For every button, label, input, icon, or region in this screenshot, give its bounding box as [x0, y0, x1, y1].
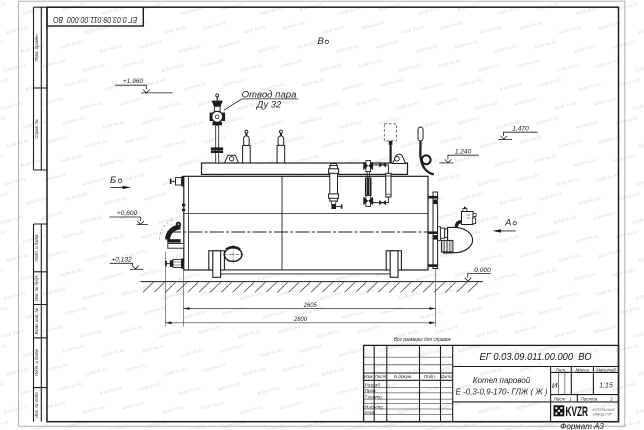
svg-text:Подп. и дата: Подп. и дата	[34, 234, 39, 262]
svg-text:KVZR: KVZR	[566, 403, 589, 419]
svg-text:Инв. № подл.: Инв. № подл.	[34, 391, 39, 418]
svg-text:+0,132: +0,132	[111, 257, 132, 264]
svg-text:Формат А3: Формат А3	[560, 422, 604, 430]
svg-text:Масштаб: Масштаб	[596, 367, 616, 372]
svg-text:+1,960: +1,960	[123, 78, 144, 85]
svg-text:Лист: Лист	[374, 374, 387, 379]
svg-text:Перв. примен.: Перв. примен.	[34, 33, 39, 62]
svg-text:В: В	[318, 36, 325, 47]
svg-text:Е -0,3-0,9-170- ГЛЖ ( Ж ): Е -0,3-0,9-170- ГЛЖ ( Ж )	[456, 388, 548, 397]
svg-text:Лист: Лист	[553, 396, 566, 401]
svg-text:1,470: 1,470	[512, 125, 529, 132]
svg-text:2605: 2605	[303, 302, 317, 309]
svg-text:КОТЕЛЬНЫЙ: КОТЕЛЬНЫЙ	[593, 408, 616, 412]
svg-text:Подп.: Подп.	[424, 374, 436, 379]
svg-text:Подп. и дата: Подп. и дата	[34, 349, 39, 377]
svg-text:0,000: 0,000	[474, 267, 491, 274]
svg-text:Справ. №: Справ. №	[34, 119, 39, 139]
svg-text:Т.контр.: Т.контр.	[365, 394, 384, 399]
svg-text:ЗАВОД РЗР: ЗАВОД РЗР	[593, 412, 613, 416]
svg-text:+0,600: +0,600	[117, 210, 138, 217]
svg-text:Взам. инв. №: Взам. инв. №	[34, 308, 39, 335]
svg-text:Лит.: Лит.	[555, 367, 567, 372]
svg-text:Н.контр.: Н.контр.	[365, 404, 384, 409]
svg-text:Изм.: Изм.	[364, 374, 374, 379]
svg-text:Утв.: Утв.	[365, 410, 375, 415]
svg-text:Котел паровой: Котел паровой	[473, 376, 531, 385]
svg-text:2: 2	[609, 396, 613, 401]
svg-text:Пров.: Пров.	[365, 388, 377, 393]
svg-text:1:15: 1:15	[599, 383, 613, 390]
svg-text:N докум.: N докум.	[394, 374, 413, 379]
svg-text:Масса: Масса	[576, 367, 590, 372]
svg-text:1: 1	[569, 396, 572, 401]
svg-text:Листов: Листов	[580, 396, 598, 401]
svg-text:Ду 32: Ду 32	[256, 99, 282, 110]
svg-text:Б: Б	[110, 175, 116, 186]
svg-text:А: А	[504, 218, 511, 229]
svg-text:Разраб.: Разраб.	[365, 382, 382, 387]
svg-text:Все размеры для справок: Все размеры для справок	[394, 337, 451, 343]
svg-text:2800: 2800	[293, 316, 307, 323]
svg-text:ЕГ 0.03.09.011.00.000 ВО: ЕГ 0.03.09.011.00.000 ВО	[53, 15, 138, 24]
svg-text:И: И	[552, 381, 558, 390]
svg-text:1,240: 1,240	[455, 148, 472, 155]
svg-text:ЕГ 0.03.09.011.00.000 ВО: ЕГ 0.03.09.011.00.000 ВО	[480, 352, 592, 363]
svg-text:Инв. № дубл.: Инв. № дубл.	[34, 275, 39, 301]
svg-text:Дата: Дата	[440, 374, 454, 379]
